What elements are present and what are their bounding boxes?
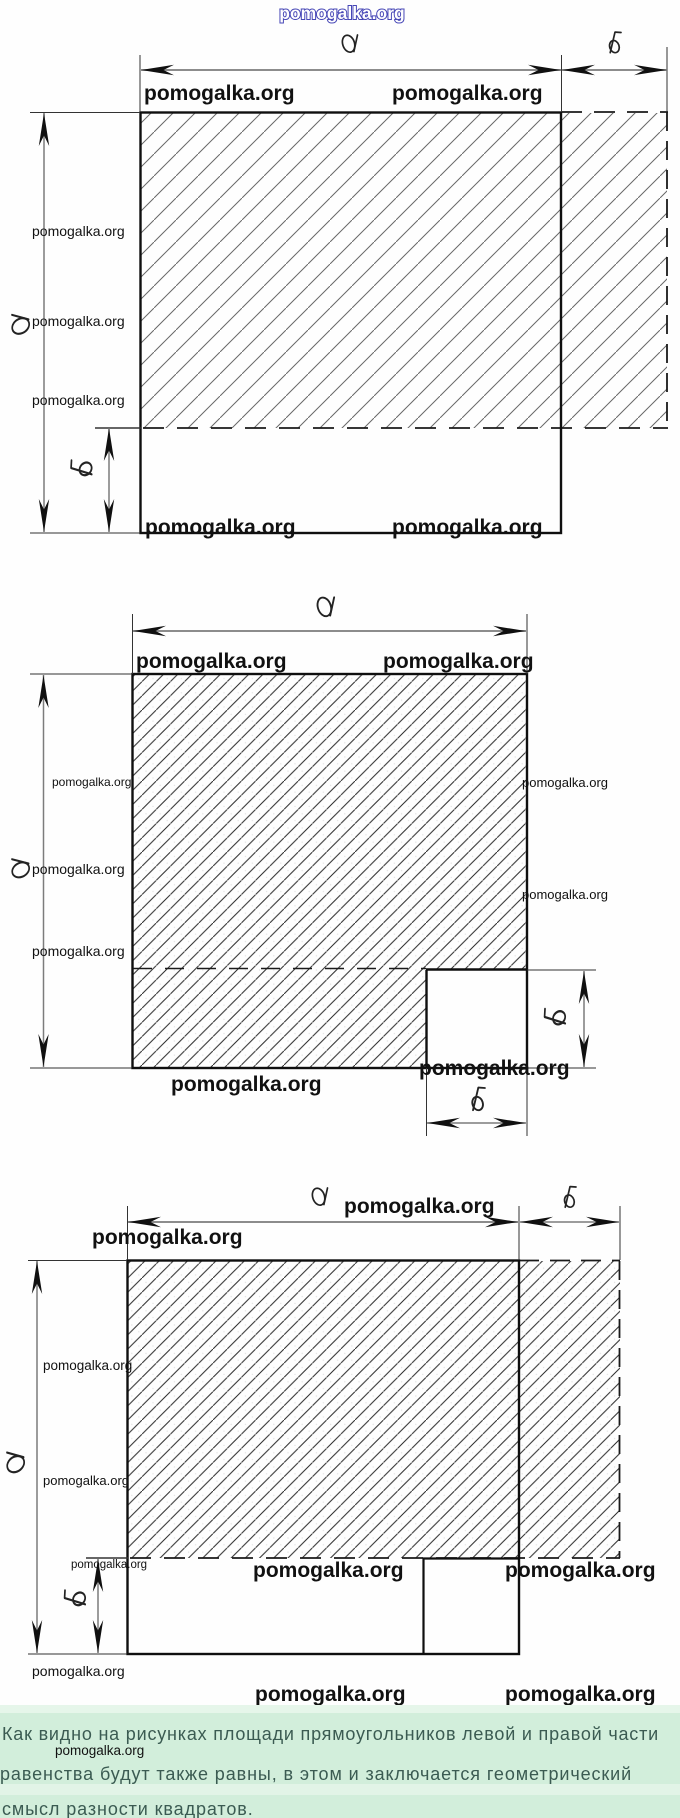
svg-text:pomogalka.org: pomogalka.org <box>71 1559 147 1571</box>
svg-text:pomogalka.org: pomogalka.org <box>32 1663 125 1679</box>
svg-text:pomogalka.org: pomogalka.org <box>392 82 543 105</box>
svg-text:pomogalka.org: pomogalka.org <box>253 1559 404 1582</box>
svg-text:pomogalka.org: pomogalka.org <box>32 861 125 877</box>
svg-text:pomogalka.org: pomogalka.org <box>32 223 125 239</box>
svg-text:pomogalka.org: pomogalka.org <box>505 1559 656 1582</box>
svg-text:pomogalka.org: pomogalka.org <box>419 1057 570 1080</box>
svg-text:pomogalka.org: pomogalka.org <box>344 1195 495 1218</box>
svg-text:pomogalka.org: pomogalka.org <box>52 775 131 789</box>
svg-text:pomogalka.org: pomogalka.org <box>522 775 608 790</box>
svg-text:pomogalka.org: pomogalka.org <box>92 1226 243 1249</box>
svg-text:pomogalka.org: pomogalka.org <box>255 1683 406 1706</box>
svg-text:pomogalka.org: pomogalka.org <box>145 516 296 539</box>
svg-text:pomogalka.org: pomogalka.org <box>43 1473 129 1488</box>
svg-text:pomogalka.org: pomogalka.org <box>279 3 404 23</box>
svg-text:Как видно на рисунках площади: Как видно на рисунках площади прямоуголь… <box>2 1724 659 1744</box>
svg-text:pomogalka.org: pomogalka.org <box>32 943 125 959</box>
svg-text:pomogalka.org: pomogalka.org <box>392 516 543 539</box>
svg-text:pomogalka.org: pomogalka.org <box>55 1743 144 1758</box>
svg-text:pomogalka.org: pomogalka.org <box>505 1683 656 1706</box>
svg-text:pomogalka.org: pomogalka.org <box>43 1358 132 1373</box>
svg-text:pomogalka.org: pomogalka.org <box>144 82 295 105</box>
svg-text:pomogalka.org: pomogalka.org <box>32 313 125 329</box>
svg-text:pomogalka.org: pomogalka.org <box>522 887 608 902</box>
svg-text:равенства будут также равны, в: равенства будут также равны, в этом и за… <box>0 1764 632 1784</box>
svg-text:pomogalka.org: pomogalka.org <box>136 650 287 673</box>
svg-text:pomogalka.org: pomogalka.org <box>32 392 125 408</box>
svg-text:pomogalka.org: pomogalka.org <box>383 650 534 673</box>
svg-text:смысл разности квадратов.: смысл разности квадратов. <box>2 1799 254 1818</box>
svg-text:pomogalka.org: pomogalka.org <box>171 1073 322 1096</box>
